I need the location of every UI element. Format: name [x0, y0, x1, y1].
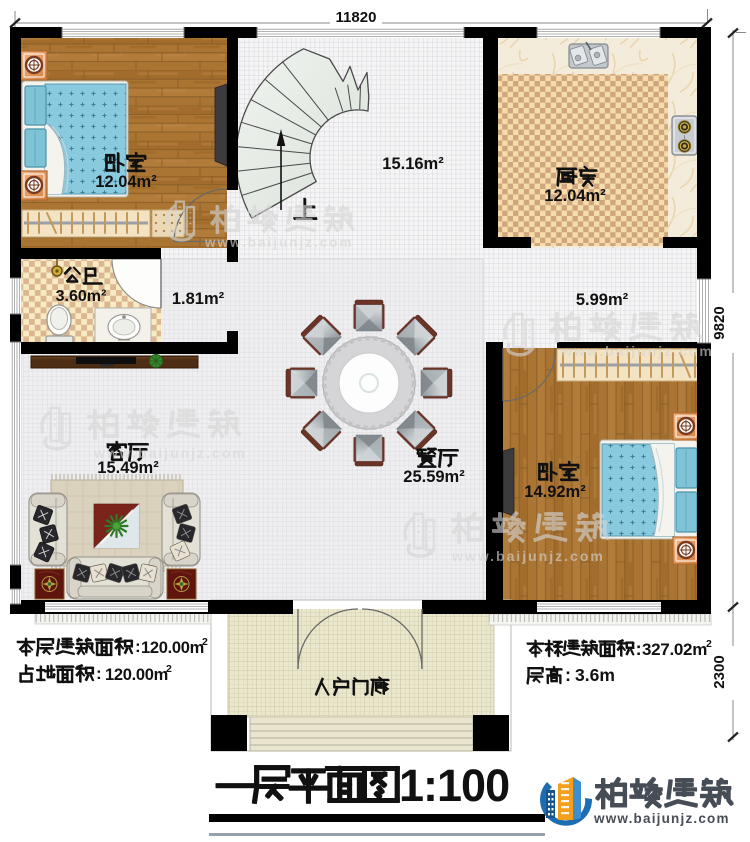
svg-text::: :	[565, 665, 571, 685]
svg-text::: :	[96, 664, 102, 683]
svg-text:1.81m²: 1.81m²	[172, 290, 225, 308]
svg-text:25.59m²: 25.59m²	[403, 468, 465, 486]
svg-text:www.baijunjz.com: www.baijunjz.com	[451, 548, 605, 564]
svg-text:12.04m²: 12.04m²	[95, 173, 157, 191]
svg-text::: :	[636, 639, 642, 659]
svg-text:www.baijunjz.com: www.baijunjz.com	[593, 811, 730, 826]
svg-text:120.00m: 120.00m	[105, 666, 168, 684]
svg-text:120.00m: 120.00m	[141, 639, 204, 657]
svg-text:www.baijunjz.com: www.baijunjz.com	[560, 343, 714, 359]
svg-text:14.92m²: 14.92m²	[524, 483, 586, 501]
svg-text:2: 2	[202, 636, 208, 648]
svg-text:9820: 9820	[711, 306, 728, 339]
svg-text:12.04m²: 12.04m²	[544, 187, 606, 205]
svg-text:15.49m²: 15.49m²	[97, 459, 159, 477]
svg-text:11820: 11820	[336, 9, 377, 26]
svg-text:3.6m: 3.6m	[575, 665, 615, 685]
svg-text:15.16m²: 15.16m²	[382, 155, 444, 173]
svg-text:www.baijunjz.com: www.baijunjz.com	[204, 235, 354, 250]
svg-text:327.02m: 327.02m	[642, 640, 707, 659]
svg-text:2: 2	[166, 663, 172, 675]
svg-text:www.baijunjz.com: www.baijunjz.com	[93, 445, 247, 461]
svg-text:3.60m²: 3.60m²	[56, 288, 107, 305]
svg-text::: :	[135, 637, 141, 656]
svg-text:1:100: 1:100	[399, 760, 509, 811]
svg-text:2300: 2300	[711, 655, 728, 688]
svg-text:5.99m²: 5.99m²	[576, 291, 629, 309]
svg-text:2: 2	[706, 638, 712, 650]
